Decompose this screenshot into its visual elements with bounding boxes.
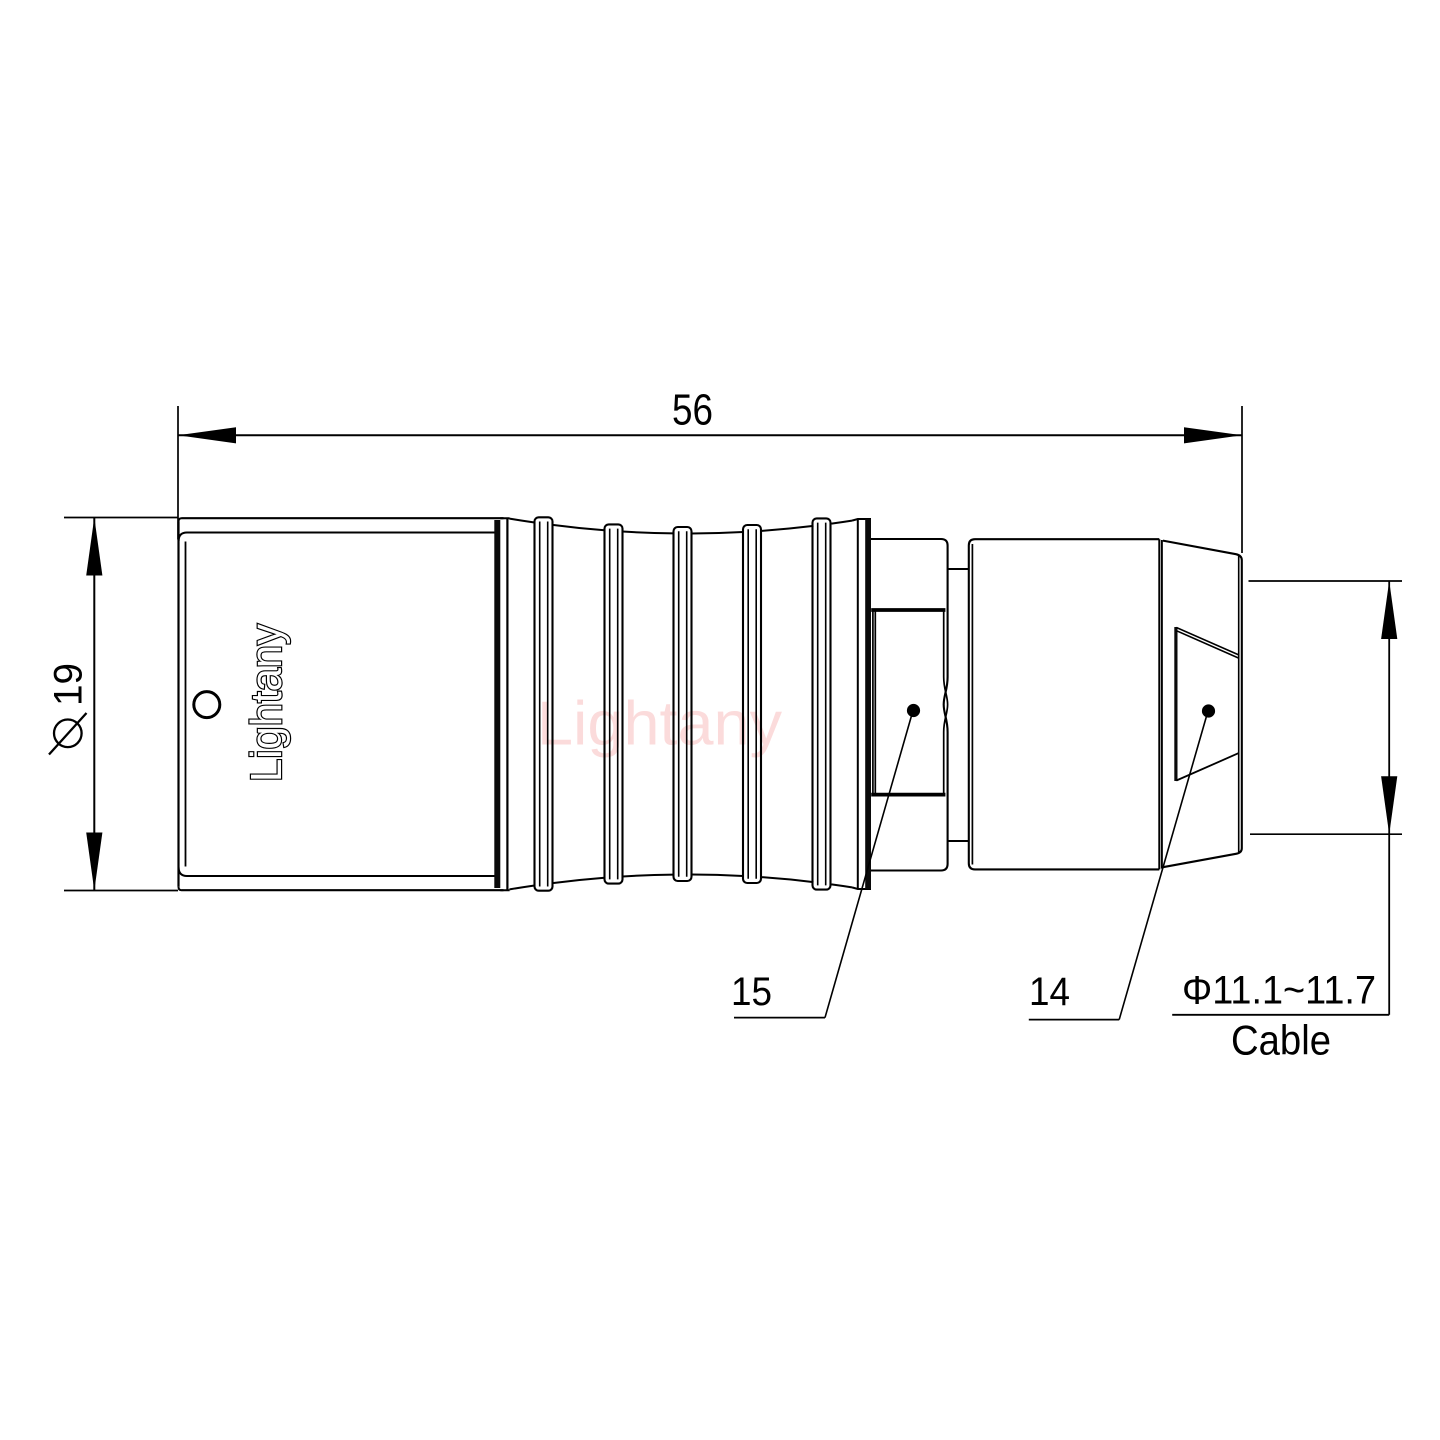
svg-text:56: 56 <box>672 386 713 435</box>
svg-text:Lightany: Lightany <box>537 690 782 759</box>
svg-text:Φ11.1~11.7: Φ11.1~11.7 <box>1182 969 1376 1013</box>
svg-text:Cable: Cable <box>1231 1017 1331 1064</box>
svg-text:15: 15 <box>731 970 772 1014</box>
svg-text:19: 19 <box>47 663 91 706</box>
svg-text:Lightany: Lightany <box>242 624 291 782</box>
svg-text:14: 14 <box>1029 970 1070 1014</box>
